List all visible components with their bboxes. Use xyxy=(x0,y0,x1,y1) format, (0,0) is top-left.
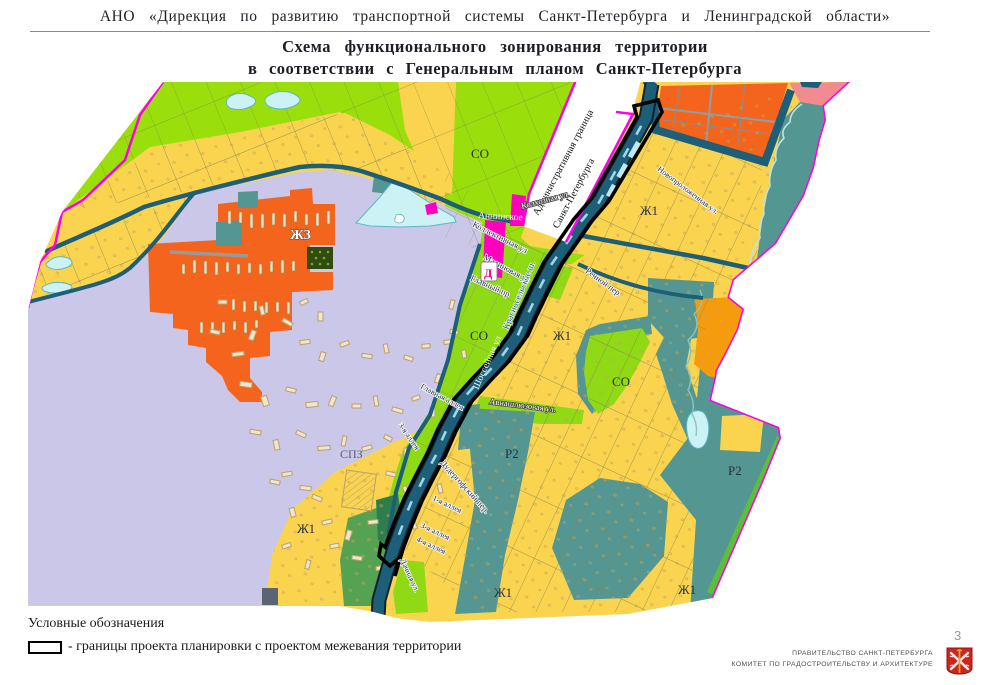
svg-text:Ж1: Ж1 xyxy=(297,521,315,536)
svg-text:Ж1: Ж1 xyxy=(640,203,658,218)
svg-text:СПЗ: СПЗ xyxy=(340,447,363,461)
svg-text:СО: СО xyxy=(471,146,489,161)
svg-text:Р2: Р2 xyxy=(728,463,742,478)
svg-text:Ж1: Ж1 xyxy=(494,585,512,600)
svg-text:Д: Д xyxy=(484,266,493,280)
svg-text:СО: СО xyxy=(612,374,630,389)
svg-text:Ж1: Ж1 xyxy=(553,328,571,343)
svg-text:ЖЗ: ЖЗ xyxy=(290,228,311,243)
svg-text:Р2: Р2 xyxy=(505,446,519,461)
svg-text:СО: СО xyxy=(470,328,488,343)
svg-text:Ж1: Ж1 xyxy=(678,582,696,597)
